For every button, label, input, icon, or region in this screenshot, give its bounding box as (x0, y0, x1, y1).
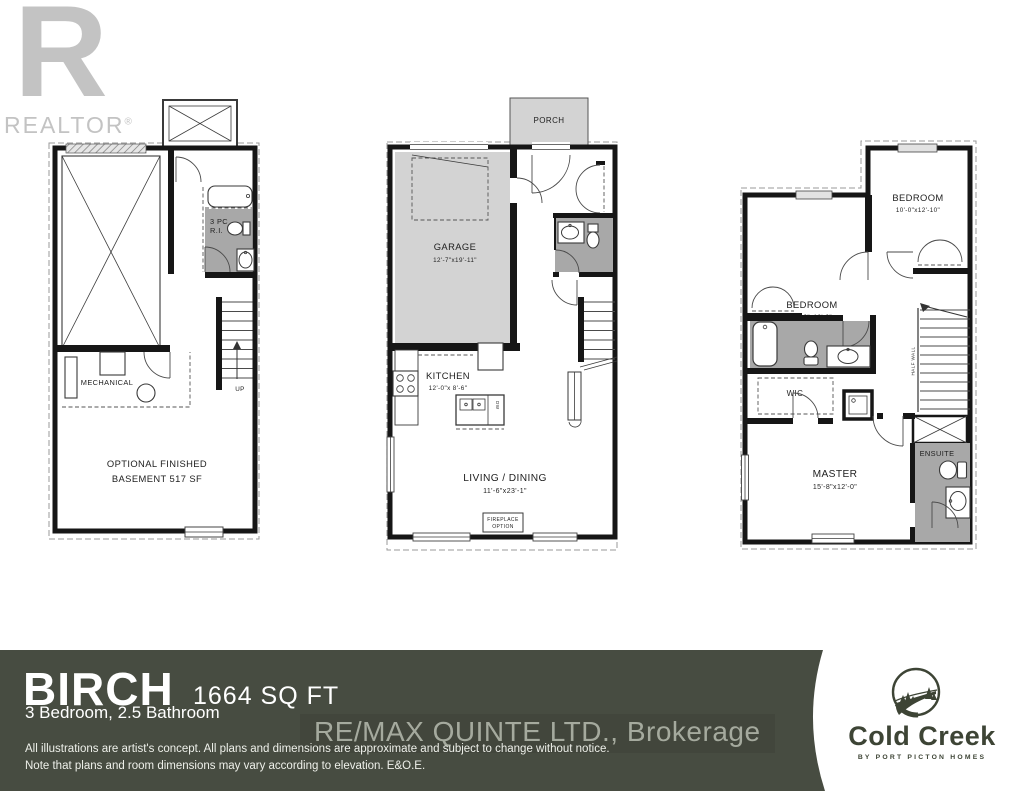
water-heater-icon (65, 357, 77, 398)
toilet-icon (804, 341, 818, 365)
toilet-icon (940, 461, 967, 479)
fireplace-option: FIREPLACE OPTION (483, 513, 523, 532)
up-label: UP (235, 386, 245, 393)
floorplan-sheet: R REALTOR® (0, 0, 1024, 791)
sink-icon (237, 249, 254, 271)
fireplace-label: FIREPLACE (487, 517, 519, 523)
window (387, 437, 394, 492)
second-floorplan: BEDROOM 11'-0"x13'-0" BEDROOM 10'-0"x12'… (740, 130, 985, 555)
dishwasher-label: DW (495, 401, 500, 410)
optional-basement-label2: BASEMENT 517 SF (112, 473, 202, 484)
coldcreek-emblem-icon (884, 665, 948, 721)
half-wall-label: HALF WALL (911, 346, 916, 375)
powder-room (553, 213, 615, 277)
stove-icon (393, 371, 418, 396)
bath-label: 3 PC (210, 217, 228, 226)
optional-basement-label: OPTIONAL FINISHED (107, 458, 207, 469)
window (185, 527, 223, 537)
kitchen-label: KITCHEN (426, 370, 470, 381)
fireplace-label2: OPTION (492, 524, 514, 530)
unexcavated-area (62, 156, 160, 348)
hall-wall (903, 413, 915, 419)
coldcreek-tagline: BY PORT PICTON HOMES (820, 754, 1024, 761)
bedroom-right-dims: 10'-0"x12'-10" (896, 207, 940, 214)
window-well (163, 100, 237, 147)
bath-wall (745, 368, 876, 374)
porch: PORCH (510, 98, 588, 146)
laundry-closet (844, 391, 872, 419)
hall-wall (877, 413, 883, 419)
window (413, 533, 470, 541)
bath-wall (745, 315, 843, 321)
linen-closet (913, 416, 967, 443)
porch-label: PORCH (534, 116, 565, 125)
garage-wall (510, 147, 517, 178)
ensuite-wall (910, 527, 915, 542)
ensuite-label: ENSUITE (920, 449, 955, 458)
window (796, 191, 832, 199)
main-floorplan: PORCH GARAGE 12'-7"x19'-11" (385, 92, 620, 567)
disclaimer: All illustrations are artist's concept. … (25, 741, 610, 775)
bedroom-right-label: BEDROOM (892, 192, 943, 203)
mechanical-wall (55, 345, 170, 352)
fridge-icon (478, 343, 503, 370)
window (742, 455, 749, 500)
footer-banner: BIRCH 1664 SQ FT 3 Bedroom, 2.5 Bathroom… (0, 650, 1024, 791)
hatched-wall (66, 144, 146, 153)
sink-icon (558, 222, 584, 243)
bedroom-dividing-wall (865, 195, 872, 252)
bath-wall (205, 272, 255, 278)
kitchen-island: DW (456, 395, 504, 429)
coldcreek-wordmark: Cold Creek (820, 721, 1024, 752)
living-dining-label: LIVING / DINING (463, 473, 547, 484)
master-dims: 15'-8"x12'-0" (813, 484, 857, 491)
ensuite-wall (910, 443, 915, 503)
disclaimer-line2: Note that plans and room dimensions may … (25, 758, 610, 775)
interior-wall (168, 150, 174, 274)
furnace-icon (100, 352, 125, 375)
window (898, 144, 937, 152)
toilet-icon (228, 222, 251, 235)
bathtub-icon (753, 322, 777, 366)
kitchen-dims: 12'-0"x 8'-6" (429, 385, 468, 392)
disclaimer-line1: All illustrations are artist's concept. … (25, 741, 610, 758)
basement-floorplan: 3 PC R.I. UP (40, 95, 270, 560)
sink-icon (946, 487, 970, 518)
window (812, 534, 854, 543)
coldcreek-panel: Cold Creek BY PORT PICTON HOMES (790, 650, 1024, 791)
master-label: MASTER (813, 469, 858, 480)
bathtub-icon (208, 186, 252, 207)
tank-icon (137, 384, 155, 402)
bath-label2: R.I. (210, 226, 223, 235)
window (533, 533, 577, 541)
toilet-icon (587, 224, 599, 248)
garage-wall (510, 203, 517, 348)
bath-wall (870, 315, 876, 368)
garage-dims: 12'-7"x19'-11" (433, 257, 477, 264)
living-dining-dims: 11'-6"x23'-1" (483, 488, 527, 495)
garage-label: GARAGE (434, 241, 477, 252)
sink-icon (827, 346, 870, 367)
mechanical-label: MECHANICAL (81, 378, 133, 387)
bed-bath-specs: 3 Bedroom, 2.5 Bathroom (25, 703, 220, 723)
